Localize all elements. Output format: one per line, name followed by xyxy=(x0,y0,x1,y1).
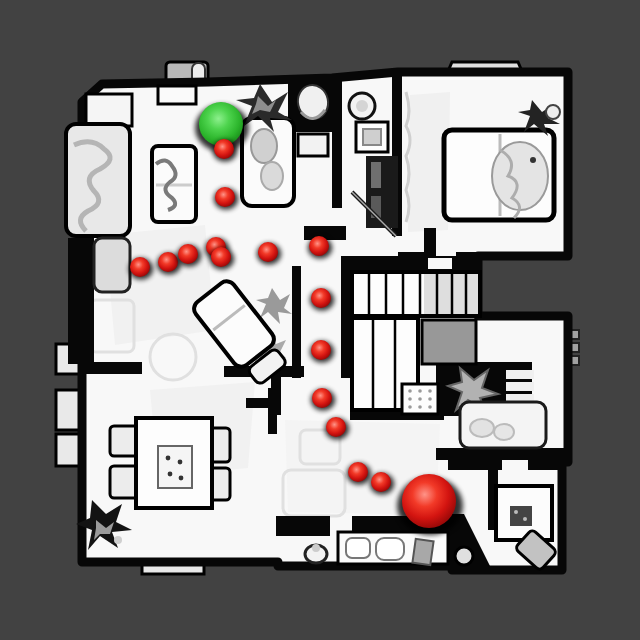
alcove-shelf xyxy=(298,134,328,156)
floorplan-render xyxy=(0,0,640,640)
dining-chair-1 xyxy=(110,426,138,456)
br-stool xyxy=(455,547,473,565)
wall-hall-right xyxy=(341,270,351,378)
bath-shelf-1 xyxy=(506,370,534,379)
wall-bedroom-bottom-a xyxy=(398,252,426,266)
bedroom-door-gap xyxy=(428,258,452,269)
wall-dining-vert xyxy=(268,388,277,434)
wall-bedroom-bottom-b xyxy=(456,252,478,266)
wall-bathstrip-a xyxy=(276,516,330,536)
dining-chair-2 xyxy=(110,466,138,498)
wall-shelf xyxy=(158,86,196,104)
bath-shelf-2 xyxy=(506,382,534,391)
towel xyxy=(412,539,433,565)
wall-brroom-top-b xyxy=(528,456,564,470)
tl-bench xyxy=(94,238,130,292)
wall-powder-room xyxy=(332,76,342,208)
refrigerator xyxy=(366,156,398,228)
wall-hall-left xyxy=(292,266,301,378)
wall-dining-stub xyxy=(246,398,270,408)
tl-bed xyxy=(66,124,130,236)
sink-2 xyxy=(376,538,404,560)
br-desk-object xyxy=(510,506,532,526)
wall-bedroom-jamb xyxy=(424,228,436,258)
viewport xyxy=(0,0,640,640)
tl-headboard xyxy=(86,94,132,126)
sink-1 xyxy=(346,538,370,558)
wall-brroom-top-a xyxy=(448,456,502,470)
tr-bed-duvet xyxy=(492,142,548,210)
wall-left-thick xyxy=(68,238,94,364)
table-centerpiece xyxy=(158,446,192,488)
stairs-landing xyxy=(422,320,476,364)
wall-counter-stub xyxy=(304,226,346,240)
